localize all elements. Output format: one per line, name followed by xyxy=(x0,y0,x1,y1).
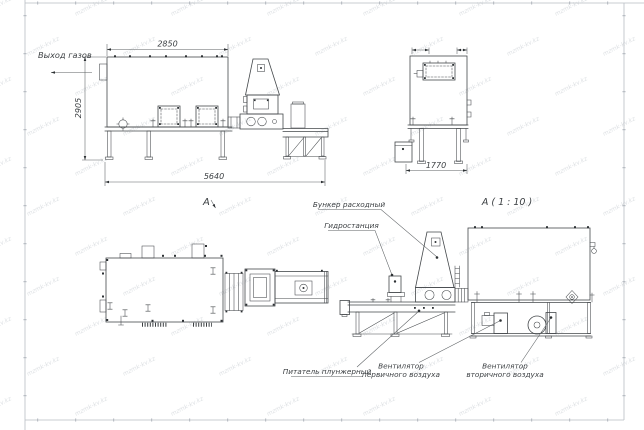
watermark-text: mzmk-kv.kz xyxy=(506,115,542,138)
watermark-text: mzmk-kv.kz xyxy=(26,195,62,218)
dim-total-length: 5640 xyxy=(204,172,224,181)
secondary-fan-label-line2: вторичного воздуха xyxy=(466,370,543,379)
watermark-text: mzmk-kv.kz xyxy=(122,35,158,58)
dim-front-width: 1770 xyxy=(426,161,446,170)
hopper-label: Бункер расходный xyxy=(313,200,385,209)
dim-height: 2905 xyxy=(74,98,83,118)
watermark-text: mzmk-kv.kz xyxy=(218,355,254,378)
tower-plan xyxy=(245,269,275,306)
watermark-text: mzmk-kv.kz xyxy=(458,235,494,258)
watermark-text: mzmk-kv.kz xyxy=(410,115,446,138)
watermark-text: mzmk-kv.kz xyxy=(362,235,398,258)
plunger-feeder-unit xyxy=(340,299,455,337)
watermark-text: mzmk-kv.kz xyxy=(74,235,110,258)
watermark-text: mzmk-kv.kz xyxy=(314,115,350,138)
engineering-drawing-sheet: mzmk-kv.kzmzmk-kv.kzmzmk-kv.kzmzmk-kv.kz… xyxy=(0,0,644,430)
watermark-text: mzmk-kv.kz xyxy=(314,35,350,58)
watermark-text: mzmk-kv.kz xyxy=(170,155,206,178)
side-elevation-view: 2850 2905 5640 Выход газов xyxy=(38,40,328,209)
inspection-hatch-1 xyxy=(151,106,187,127)
feeder-plan xyxy=(275,270,328,303)
watermark-text: mzmk-kv.kz xyxy=(554,235,590,258)
watermark-text: mzmk-kv.kz xyxy=(602,355,638,378)
watermark-text: mzmk-kv.kz xyxy=(218,35,254,58)
watermark-text: mzmk-kv.kz xyxy=(26,275,62,298)
front-hatch xyxy=(414,61,455,80)
watermark-text: mzmk-kv.kz xyxy=(410,275,446,298)
watermark-text: mzmk-kv.kz xyxy=(0,315,13,338)
watermark-text: mzmk-kv.kz xyxy=(0,395,13,418)
watermark-text: mzmk-kv.kz xyxy=(362,395,398,418)
watermark-text: mzmk-kv.kz xyxy=(170,395,206,418)
watermark-text: mzmk-kv.kz xyxy=(26,115,62,138)
watermark-text: mzmk-kv.kz xyxy=(266,235,302,258)
primary-fan-label-line2: первичного воздуха xyxy=(362,370,440,379)
view-a-label: A xyxy=(202,197,210,208)
watermark-text: mzmk-kv.kz xyxy=(362,155,398,178)
watermark-text: mzmk-kv.kz xyxy=(362,315,398,338)
watermark-text: mzmk-kv.kz xyxy=(170,75,206,98)
watermark-text: mzmk-kv.kz xyxy=(410,35,446,58)
side-box xyxy=(395,142,412,162)
watermark-text: mzmk-kv.kz xyxy=(506,35,542,58)
boiler-body xyxy=(107,57,228,127)
dim-top-width: 2850 xyxy=(157,40,177,49)
watermark-text: mzmk-kv.kz xyxy=(170,235,206,258)
watermark-text: mzmk-kv.kz xyxy=(266,75,302,98)
watermark-text: mzmk-kv.kz xyxy=(122,275,158,298)
hydrostation-label: Гидростанция xyxy=(324,221,379,230)
watermark-text: mzmk-kv.kz xyxy=(602,275,638,298)
callout-hydrostation: Гидростанция xyxy=(324,221,393,276)
watermark-text: mzmk-kv.kz xyxy=(554,395,590,418)
watermark-text: mzmk-kv.kz xyxy=(0,155,13,178)
watermark-text: mzmk-kv.kz xyxy=(74,395,110,418)
watermark-text: mzmk-kv.kz xyxy=(554,315,590,338)
watermark-text: mzmk-kv.kz xyxy=(602,195,638,218)
plan-foot-mark xyxy=(119,316,124,325)
watermark-text: mzmk-kv.kz xyxy=(26,355,62,378)
watermark-text: mzmk-kv.kz xyxy=(0,235,13,258)
inspection-hatch-2 xyxy=(189,106,225,127)
watermark-text: mzmk-kv.kz xyxy=(0,0,13,18)
detail-view-title: A ( 1 : 10 ) xyxy=(481,197,532,208)
watermark-text: mzmk-kv.kz xyxy=(122,115,158,138)
front-view: 1770 xyxy=(395,48,471,175)
watermark-text: mzmk-kv.kz xyxy=(506,275,542,298)
watermark-text: mzmk-kv.kz xyxy=(362,75,398,98)
watermark-text: mzmk-kv.kz xyxy=(74,315,110,338)
hydrostation-unit xyxy=(388,276,405,302)
view-a-direction-arrow-icon xyxy=(211,200,216,208)
bottom-bolt-marks xyxy=(475,292,595,303)
watermark-text: mzmk-kv.kz xyxy=(122,195,158,218)
watermark-text: mzmk-kv.kz xyxy=(314,275,350,298)
watermark-text: mzmk-kv.kz xyxy=(266,315,302,338)
watermark-text: mzmk-kv.kz xyxy=(458,75,494,98)
watermark-text: mzmk-kv.kz xyxy=(602,35,638,58)
watermark-text: mzmk-kv.kz xyxy=(458,395,494,418)
right-bracket xyxy=(590,243,596,254)
watermark-text: mzmk-kv.kz xyxy=(458,155,494,178)
watermark-text: mzmk-kv.kz xyxy=(458,315,494,338)
watermark-text: mzmk-kv.kz xyxy=(602,115,638,138)
watermark-text: mzmk-kv.kz xyxy=(74,75,110,98)
watermark-text: mzmk-kv.kz xyxy=(266,395,302,418)
detail-bellows-duct xyxy=(455,266,468,302)
watermark-text: mzmk-kv.kz xyxy=(0,75,13,98)
watermark-text: mzmk-kv.kz xyxy=(122,355,158,378)
watermark-text: mzmk-kv.kz xyxy=(218,195,254,218)
gas-outlet-label: Выход газов xyxy=(38,50,92,60)
diamond-flange xyxy=(566,291,578,304)
feeder-label: Питатель плунжерный xyxy=(283,367,372,376)
watermark-text: mzmk-kv.kz xyxy=(554,155,590,178)
watermark-text: mzmk-kv.kz xyxy=(410,195,446,218)
watermark-text: mzmk-kv.kz xyxy=(74,155,110,178)
watermark-text: mzmk-kv.kz xyxy=(170,315,206,338)
watermark-text: mzmk-kv.kz xyxy=(554,75,590,98)
side-nubs xyxy=(467,100,471,117)
